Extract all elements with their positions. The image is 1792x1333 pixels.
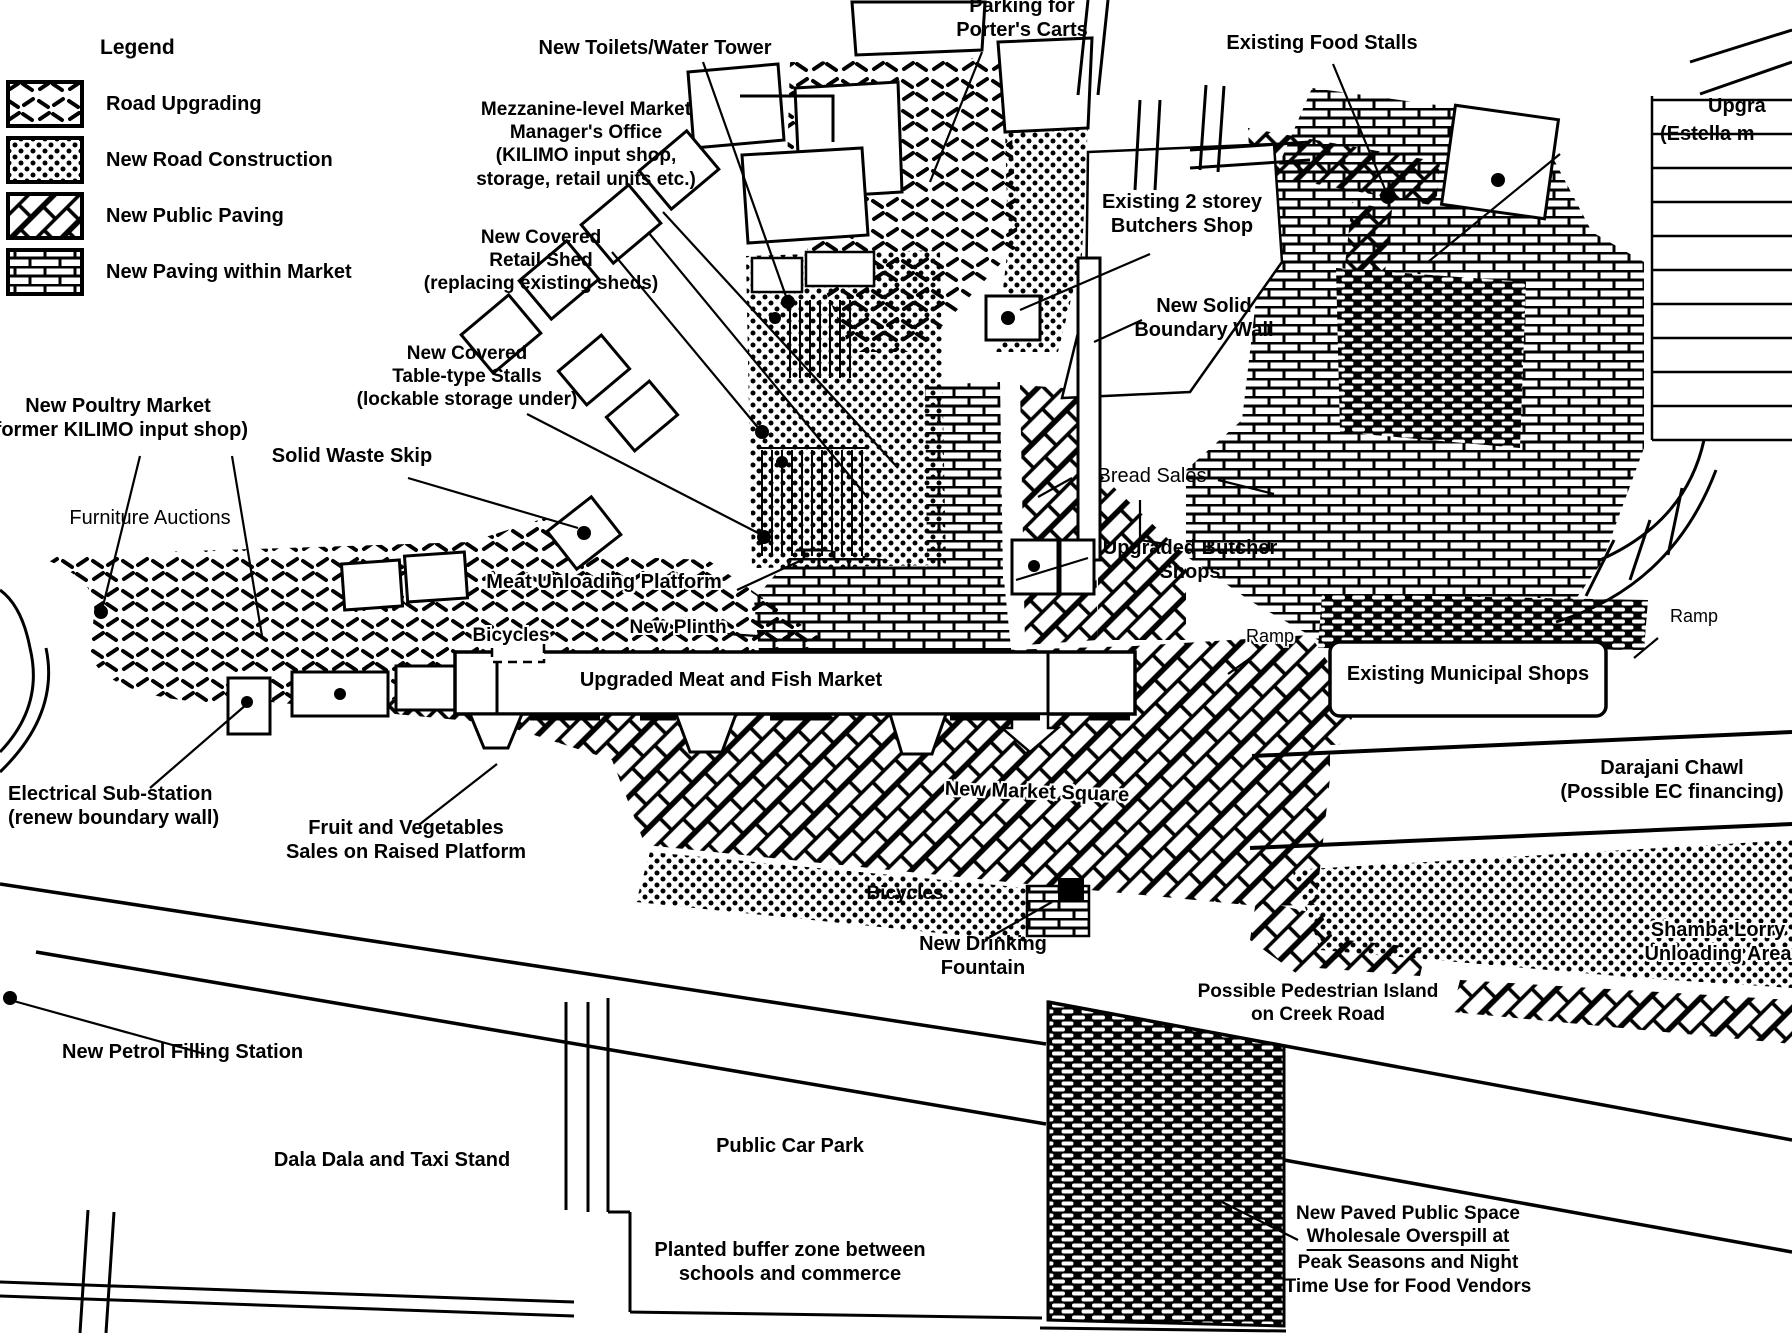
road-upgrading-swatch: [6, 80, 84, 128]
map-label-toilets: New Toilets/Water Tower: [539, 36, 772, 60]
map-label-line: Bread Sales: [1098, 464, 1207, 488]
map-label-bread-sales: Bread Sales: [1098, 464, 1207, 488]
map-label-line: Solid Waste Skip: [272, 444, 432, 468]
top-right-diagonals: [1690, 30, 1792, 94]
map-label-upgra: Upgra: [1708, 94, 1766, 118]
legend-title: Legend: [100, 36, 175, 60]
map-label-line: New Plinth: [629, 616, 726, 639]
legend-item-label: New Public Paving: [106, 205, 284, 228]
map-label-line: Fountain: [919, 956, 1047, 980]
creek-road-lower-edge: [36, 952, 1046, 1124]
map-label-line: Butchers Shop: [1102, 214, 1262, 238]
map-label-line: Boundary Wall: [1134, 318, 1273, 342]
map-label-line: schools and commerce: [654, 1262, 925, 1286]
site-plan-page: Legend Road Upgrading New Road Construct…: [0, 0, 1792, 1333]
map-label-line: Unloading Area: [1644, 942, 1791, 966]
legend-item-label: New Paving within Market: [106, 261, 352, 284]
map-label-fountain: New DrinkingFountain: [919, 932, 1047, 981]
map-label-bicycles-1: Bicycles: [472, 624, 549, 647]
legend-item-market-paving: New Paving within Market: [6, 248, 352, 296]
map-label-dala-dala: Dala Dala and Taxi Stand: [274, 1148, 510, 1172]
map-label-table-stalls: New CoveredTable-type Stalls(lockable st…: [357, 342, 578, 412]
map-label-pedestrian-island: Possible Pedestrian Islandon Creek Road: [1198, 980, 1439, 1026]
map-label-line: (replacing existing sheds): [424, 272, 658, 295]
drinking-fountain: [1058, 878, 1084, 902]
map-label-line: Fruit and Vegetables: [286, 816, 526, 840]
map-label-mezzanine-office: Mezzanine-level MarketManager's Office(K…: [476, 98, 696, 191]
map-label-line: Parking for: [956, 0, 1087, 18]
diag-building-6: [606, 381, 677, 451]
map-label-line: New Covered: [357, 342, 578, 365]
hatch-band-lower: [1452, 980, 1792, 1044]
map-label-fruit-veg: Fruit and VegetablesSales on Raised Plat…: [286, 816, 526, 865]
map-label-line: Upgraded Butcher: [1103, 536, 1277, 560]
map-label-line: Existing Municipal Shops: [1347, 662, 1589, 686]
legend-item-new-road: New Road Construction: [6, 136, 333, 184]
map-label-line: on Creek Road: [1198, 1003, 1439, 1026]
map-label-line: Porter's Carts: [956, 18, 1087, 42]
new-road-swatch: [6, 136, 84, 184]
map-label-estella: (Estella m: [1660, 122, 1754, 146]
map-label-food-stalls: Existing Food Stalls: [1226, 31, 1417, 55]
map-label-bicycles-2: Bicycles: [866, 882, 943, 905]
map-label-line: Possible Pedestrian Island: [1198, 980, 1439, 1003]
market-stall-roof-2: [806, 252, 874, 286]
map-label-paved-space: New Paved Public SpaceWholesale Overspil…: [1285, 1202, 1532, 1298]
market-tooth-1: [470, 714, 522, 748]
map-label-line: Mezzanine-level Market: [476, 98, 696, 121]
map-label-line: New Petrol Filling Station: [62, 1040, 303, 1064]
map-label-line: (Estella m: [1660, 122, 1754, 146]
map-label-ramp-right: Ramp: [1670, 606, 1718, 628]
map-label-line: Bicycles: [472, 624, 549, 647]
map-label-line: Shops: [1103, 560, 1277, 584]
map-label-line: New Drinking: [919, 932, 1047, 956]
legend-item-label: New Road Construction: [106, 149, 333, 172]
map-label-shamba-lorry: Shamba LorryUnloading Area: [1644, 918, 1791, 967]
dark-block-1: [1336, 268, 1526, 448]
map-label-line: (renew boundary wall): [8, 806, 219, 830]
market-paving-swatch: [6, 248, 84, 296]
boundary-wall-element: [1078, 258, 1100, 560]
map-label-line: (KILIMO input shop,: [476, 144, 696, 167]
map-label-line: Electrical Sub-station: [8, 782, 219, 806]
market-stall-roof-1: [752, 258, 802, 292]
map-label-waste-skip: Solid Waste Skip: [272, 444, 432, 468]
map-label-line: New Paved Public Space: [1285, 1202, 1532, 1225]
overspill-block: [1048, 1002, 1284, 1326]
map-label-line: Sales on Raised Platform: [286, 840, 526, 864]
map-label-buffer-zone: Planted buffer zone betweenschools and c…: [654, 1238, 925, 1287]
map-label-municipal-shops: Existing Municipal Shops: [1347, 662, 1589, 686]
upgraded-butcher-box-2: [1060, 540, 1094, 594]
map-label-boundary-wall: New SolidBoundary Wall: [1134, 294, 1273, 343]
band-building-1: [341, 560, 402, 610]
map-label-line: Peak Seasons and Night: [1285, 1251, 1532, 1274]
map-label-line: Shamba Lorry: [1644, 918, 1791, 942]
map-label-line: Ramp: [1670, 606, 1718, 628]
map-label-line: Wholesale Overspill at: [1307, 1225, 1510, 1251]
map-label-meat-platform: Meat Unloading Platform: [486, 570, 722, 594]
map-label-line: Meat Unloading Platform: [486, 570, 722, 594]
map-label-line: Bicycles: [866, 882, 943, 905]
map-label-line: Dala Dala and Taxi Stand: [274, 1148, 510, 1172]
map-label-line: Upgra: [1708, 94, 1766, 118]
market-block-ground: [746, 250, 946, 568]
bottom-left-roads: [0, 1210, 574, 1333]
market-stall-lines-upper: [790, 300, 850, 378]
map-label-retail-shed: New CoveredRetail Shed(replacing existin…: [424, 226, 658, 296]
map-label-upgraded-butcher: Upgraded ButcherShops: [1103, 536, 1277, 585]
legend-item-public-paving: New Public Paving: [6, 192, 284, 240]
map-label-line: New Poultry Market: [0, 394, 248, 418]
map-label-line: New Solid: [1134, 294, 1273, 318]
map-label-line: Furniture Auctions: [69, 506, 230, 530]
map-label-poultry-market: New Poultry Market(former KILIMO input s…: [0, 394, 248, 443]
map-label-line: storage, retail units etc.): [476, 168, 696, 191]
public-paving-swatch: [6, 192, 84, 240]
map-label-ramp-left: Ramp: [1246, 626, 1294, 648]
poultry-building-2: [396, 666, 458, 710]
map-label-porters-carts: Parking forPorter's Carts: [956, 0, 1087, 43]
map-label-darajani-chawl: Darajani Chawl(Possible EC financing): [1560, 756, 1783, 805]
map-label-electrical: Electrical Sub-station(renew boundary wa…: [8, 782, 219, 831]
map-label-line: Time Use for Food Vendors: [1285, 1275, 1532, 1298]
map-label-line: Manager's Office: [476, 121, 696, 144]
map-label-line: Existing Food Stalls: [1226, 31, 1417, 55]
map-label-butchers-shop: Existing 2 storeyButchers Shop: [1102, 190, 1262, 239]
map-label-car-park: Public Car Park: [716, 1134, 864, 1158]
map-label-petrol-station: New Petrol Filling Station: [62, 1040, 303, 1064]
map-label-line: Table-type Stalls: [357, 365, 578, 388]
map-label-line: (former KILIMO input shop): [0, 418, 248, 442]
map-label-line: Darajani Chawl: [1560, 756, 1783, 780]
map-label-furniture-auctions: Furniture Auctions: [69, 506, 230, 530]
funnel-building-1: [688, 64, 784, 148]
legend-item-road-upgrading: Road Upgrading: [6, 80, 262, 128]
map-label-line: Planted buffer zone between: [654, 1238, 925, 1262]
legend-item-label: Road Upgrading: [106, 93, 262, 116]
map-label-line: Existing 2 storey: [1102, 190, 1262, 214]
map-label-new-plinth: New Plinth: [629, 616, 726, 639]
map-label-line: New Covered: [424, 226, 658, 249]
right-edge-stall-comb: [1652, 96, 1792, 440]
map-label-line: (Possible EC financing): [1560, 780, 1783, 804]
map-label-line: Retail Shed: [424, 249, 658, 272]
band-building-2: [404, 552, 467, 602]
map-label-line: Ramp: [1246, 626, 1294, 648]
map-label-line: Upgraded Meat and Fish Market: [580, 668, 882, 692]
map-label-line: (lockable storage under): [357, 388, 578, 411]
map-label-meat-fish-market: Upgraded Meat and Fish Market: [580, 668, 882, 692]
map-label-line: Public Car Park: [716, 1134, 864, 1158]
map-label-line: New Toilets/Water Tower: [539, 36, 772, 60]
left-road-curve: [0, 590, 49, 772]
